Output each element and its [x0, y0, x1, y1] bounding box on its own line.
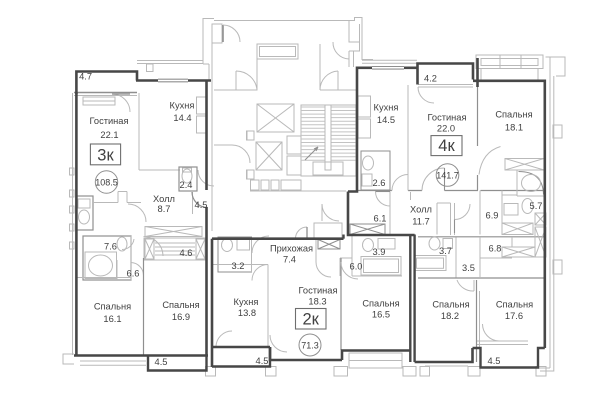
svg-text:18.3: 18.3: [308, 297, 326, 307]
svg-text:22.0: 22.0: [437, 124, 455, 134]
svg-text:3.2: 3.2: [232, 261, 245, 271]
svg-text:4.5: 4.5: [155, 357, 168, 367]
svg-text:Холл: Холл: [410, 205, 432, 215]
svg-text:2.6: 2.6: [373, 178, 386, 188]
svg-text:Гостиная: Гостиная: [89, 116, 128, 126]
svg-text:16.1: 16.1: [103, 314, 121, 324]
svg-text:3к: 3к: [97, 147, 114, 165]
svg-text:Кухня: Кухня: [170, 101, 195, 111]
svg-text:Спальня: Спальня: [362, 299, 399, 309]
svg-text:2.4: 2.4: [180, 180, 193, 190]
svg-text:4.6: 4.6: [180, 248, 193, 258]
svg-text:6.1: 6.1: [374, 214, 387, 224]
svg-text:6.8: 6.8: [489, 244, 502, 254]
svg-text:4.5: 4.5: [195, 200, 208, 210]
svg-text:141.7: 141.7: [436, 170, 459, 180]
svg-text:11.7: 11.7: [412, 217, 430, 227]
svg-text:Кухня: Кухня: [234, 297, 259, 307]
svg-text:Спальня: Спальня: [432, 300, 469, 310]
svg-text:16.5: 16.5: [372, 310, 390, 320]
svg-text:71.3: 71.3: [301, 341, 319, 351]
svg-text:7.6: 7.6: [104, 242, 117, 252]
svg-text:4.5: 4.5: [488, 356, 501, 366]
svg-text:14.5: 14.5: [377, 115, 395, 125]
svg-text:7.4: 7.4: [283, 255, 296, 265]
svg-text:8.7: 8.7: [158, 204, 171, 214]
svg-text:4.7: 4.7: [79, 71, 92, 81]
svg-text:16.9: 16.9: [172, 312, 190, 322]
svg-text:Спальня: Спальня: [495, 110, 532, 120]
svg-text:4.2: 4.2: [424, 74, 437, 84]
svg-text:2к: 2к: [302, 311, 319, 329]
svg-text:Прихожая: Прихожая: [270, 244, 313, 254]
svg-text:22.1: 22.1: [100, 130, 118, 140]
svg-text:3.5: 3.5: [462, 263, 475, 273]
svg-text:Гостиная: Гостиная: [298, 286, 337, 296]
svg-text:13.8: 13.8: [238, 308, 256, 318]
svg-text:6.9: 6.9: [486, 211, 499, 221]
svg-text:Спальня: Спальня: [94, 302, 131, 312]
svg-text:Спальня: Спальня: [496, 300, 533, 310]
svg-text:4к: 4к: [438, 137, 455, 155]
svg-text:108.5: 108.5: [95, 177, 118, 187]
svg-text:17.6: 17.6: [505, 311, 523, 321]
svg-text:18.2: 18.2: [441, 311, 459, 321]
svg-text:18.1: 18.1: [505, 123, 523, 133]
svg-text:Гостиная: Гостиная: [427, 113, 466, 123]
svg-text:3.7: 3.7: [439, 246, 452, 256]
svg-text:5.7: 5.7: [530, 201, 543, 211]
svg-text:Спальня: Спальня: [162, 300, 199, 310]
svg-text:3.9: 3.9: [373, 247, 386, 257]
svg-text:Холл: Холл: [153, 194, 175, 204]
svg-text:4.5: 4.5: [256, 356, 269, 366]
svg-text:Кухня: Кухня: [374, 103, 399, 113]
svg-text:14.4: 14.4: [173, 113, 191, 123]
svg-text:6.0: 6.0: [350, 262, 363, 272]
svg-text:6.6: 6.6: [127, 269, 140, 279]
